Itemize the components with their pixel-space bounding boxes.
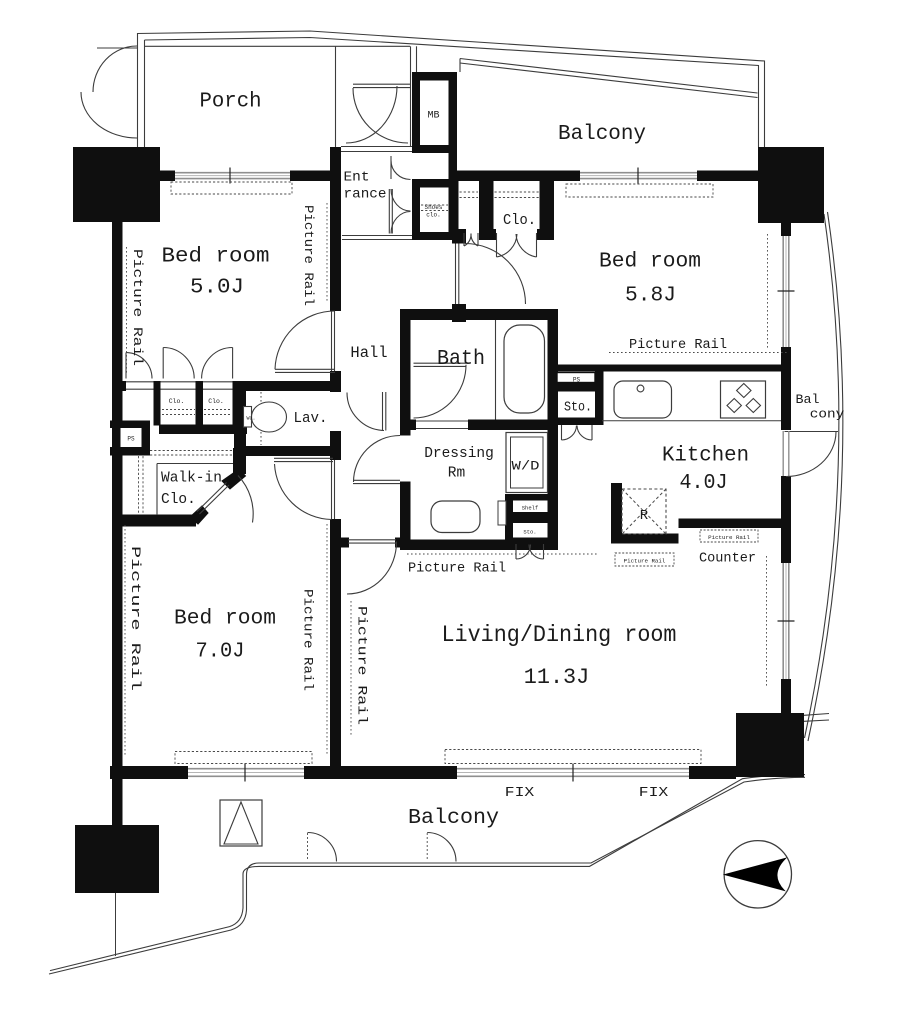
svg-text:Shoes: Shoes — [424, 204, 442, 211]
svg-text:PS: PS — [573, 377, 581, 384]
svg-text:Clo.: Clo. — [169, 398, 185, 405]
svg-text:Dressing: Dressing — [424, 446, 494, 462]
svg-text:Balcony: Balcony — [408, 807, 499, 830]
svg-text:Clo.: Clo. — [503, 213, 536, 229]
svg-text:cony: cony — [810, 407, 845, 422]
svg-text:Picture Rail: Picture Rail — [629, 338, 727, 353]
svg-text:Ent: Ent — [344, 170, 370, 186]
svg-text:Walk-in: Walk-in — [161, 471, 222, 487]
svg-text:R: R — [640, 508, 649, 524]
svg-text:Balcony: Balcony — [558, 123, 646, 146]
svg-text:Picture Rail: Picture Rail — [130, 249, 144, 366]
svg-text:4.0J: 4.0J — [680, 472, 728, 495]
svg-text:Clo.: Clo. — [208, 398, 224, 405]
svg-text:5.0J: 5.0J — [190, 277, 244, 300]
svg-text:Picture Rail: Picture Rail — [708, 534, 750, 541]
svg-text:Picture Rail: Picture Rail — [624, 558, 666, 565]
svg-text:FIX: FIX — [505, 785, 535, 801]
svg-text:PS: PS — [127, 436, 135, 443]
svg-text:Bal: Bal — [796, 392, 820, 407]
svg-text:Picture Rail: Picture Rail — [408, 562, 506, 577]
svg-text:rance: rance — [344, 187, 387, 203]
svg-text:Sto.: Sto. — [523, 529, 536, 536]
svg-text:W/D: W/D — [512, 459, 540, 474]
svg-text:Bed room: Bed room — [174, 608, 276, 631]
svg-text:clo.: clo. — [426, 212, 440, 219]
svg-text:Wa.: Wa. — [246, 416, 255, 422]
svg-text:Sto.: Sto. — [564, 400, 592, 416]
svg-text:Kitchen: Kitchen — [662, 445, 749, 468]
svg-text:Bed room: Bed room — [599, 251, 701, 274]
svg-text:Lav.: Lav. — [294, 411, 328, 427]
svg-text:Bed room: Bed room — [162, 246, 270, 269]
svg-text:Picture Rail: Picture Rail — [301, 589, 315, 691]
svg-text:Porch: Porch — [200, 91, 262, 114]
svg-text:Living/Dining room: Living/Dining room — [442, 622, 677, 648]
svg-text:Picture Rail: Picture Rail — [355, 606, 369, 725]
svg-text:Bath: Bath — [437, 348, 485, 371]
svg-text:Counter: Counter — [699, 551, 756, 567]
svg-text:Rm: Rm — [448, 466, 465, 482]
svg-text:Shelf: Shelf — [522, 505, 539, 512]
svg-text:11.3J: 11.3J — [524, 664, 590, 690]
svg-text:Hall: Hall — [350, 344, 387, 362]
svg-text:FIX: FIX — [639, 785, 669, 801]
svg-text:Clo.: Clo. — [161, 492, 196, 508]
svg-text:Picture Rail: Picture Rail — [301, 205, 315, 306]
svg-text:Picture Rail: Picture Rail — [128, 546, 142, 691]
svg-text:7.0J: 7.0J — [196, 641, 245, 664]
svg-text:5.8J: 5.8J — [625, 285, 676, 308]
svg-text:MB: MB — [427, 111, 439, 122]
